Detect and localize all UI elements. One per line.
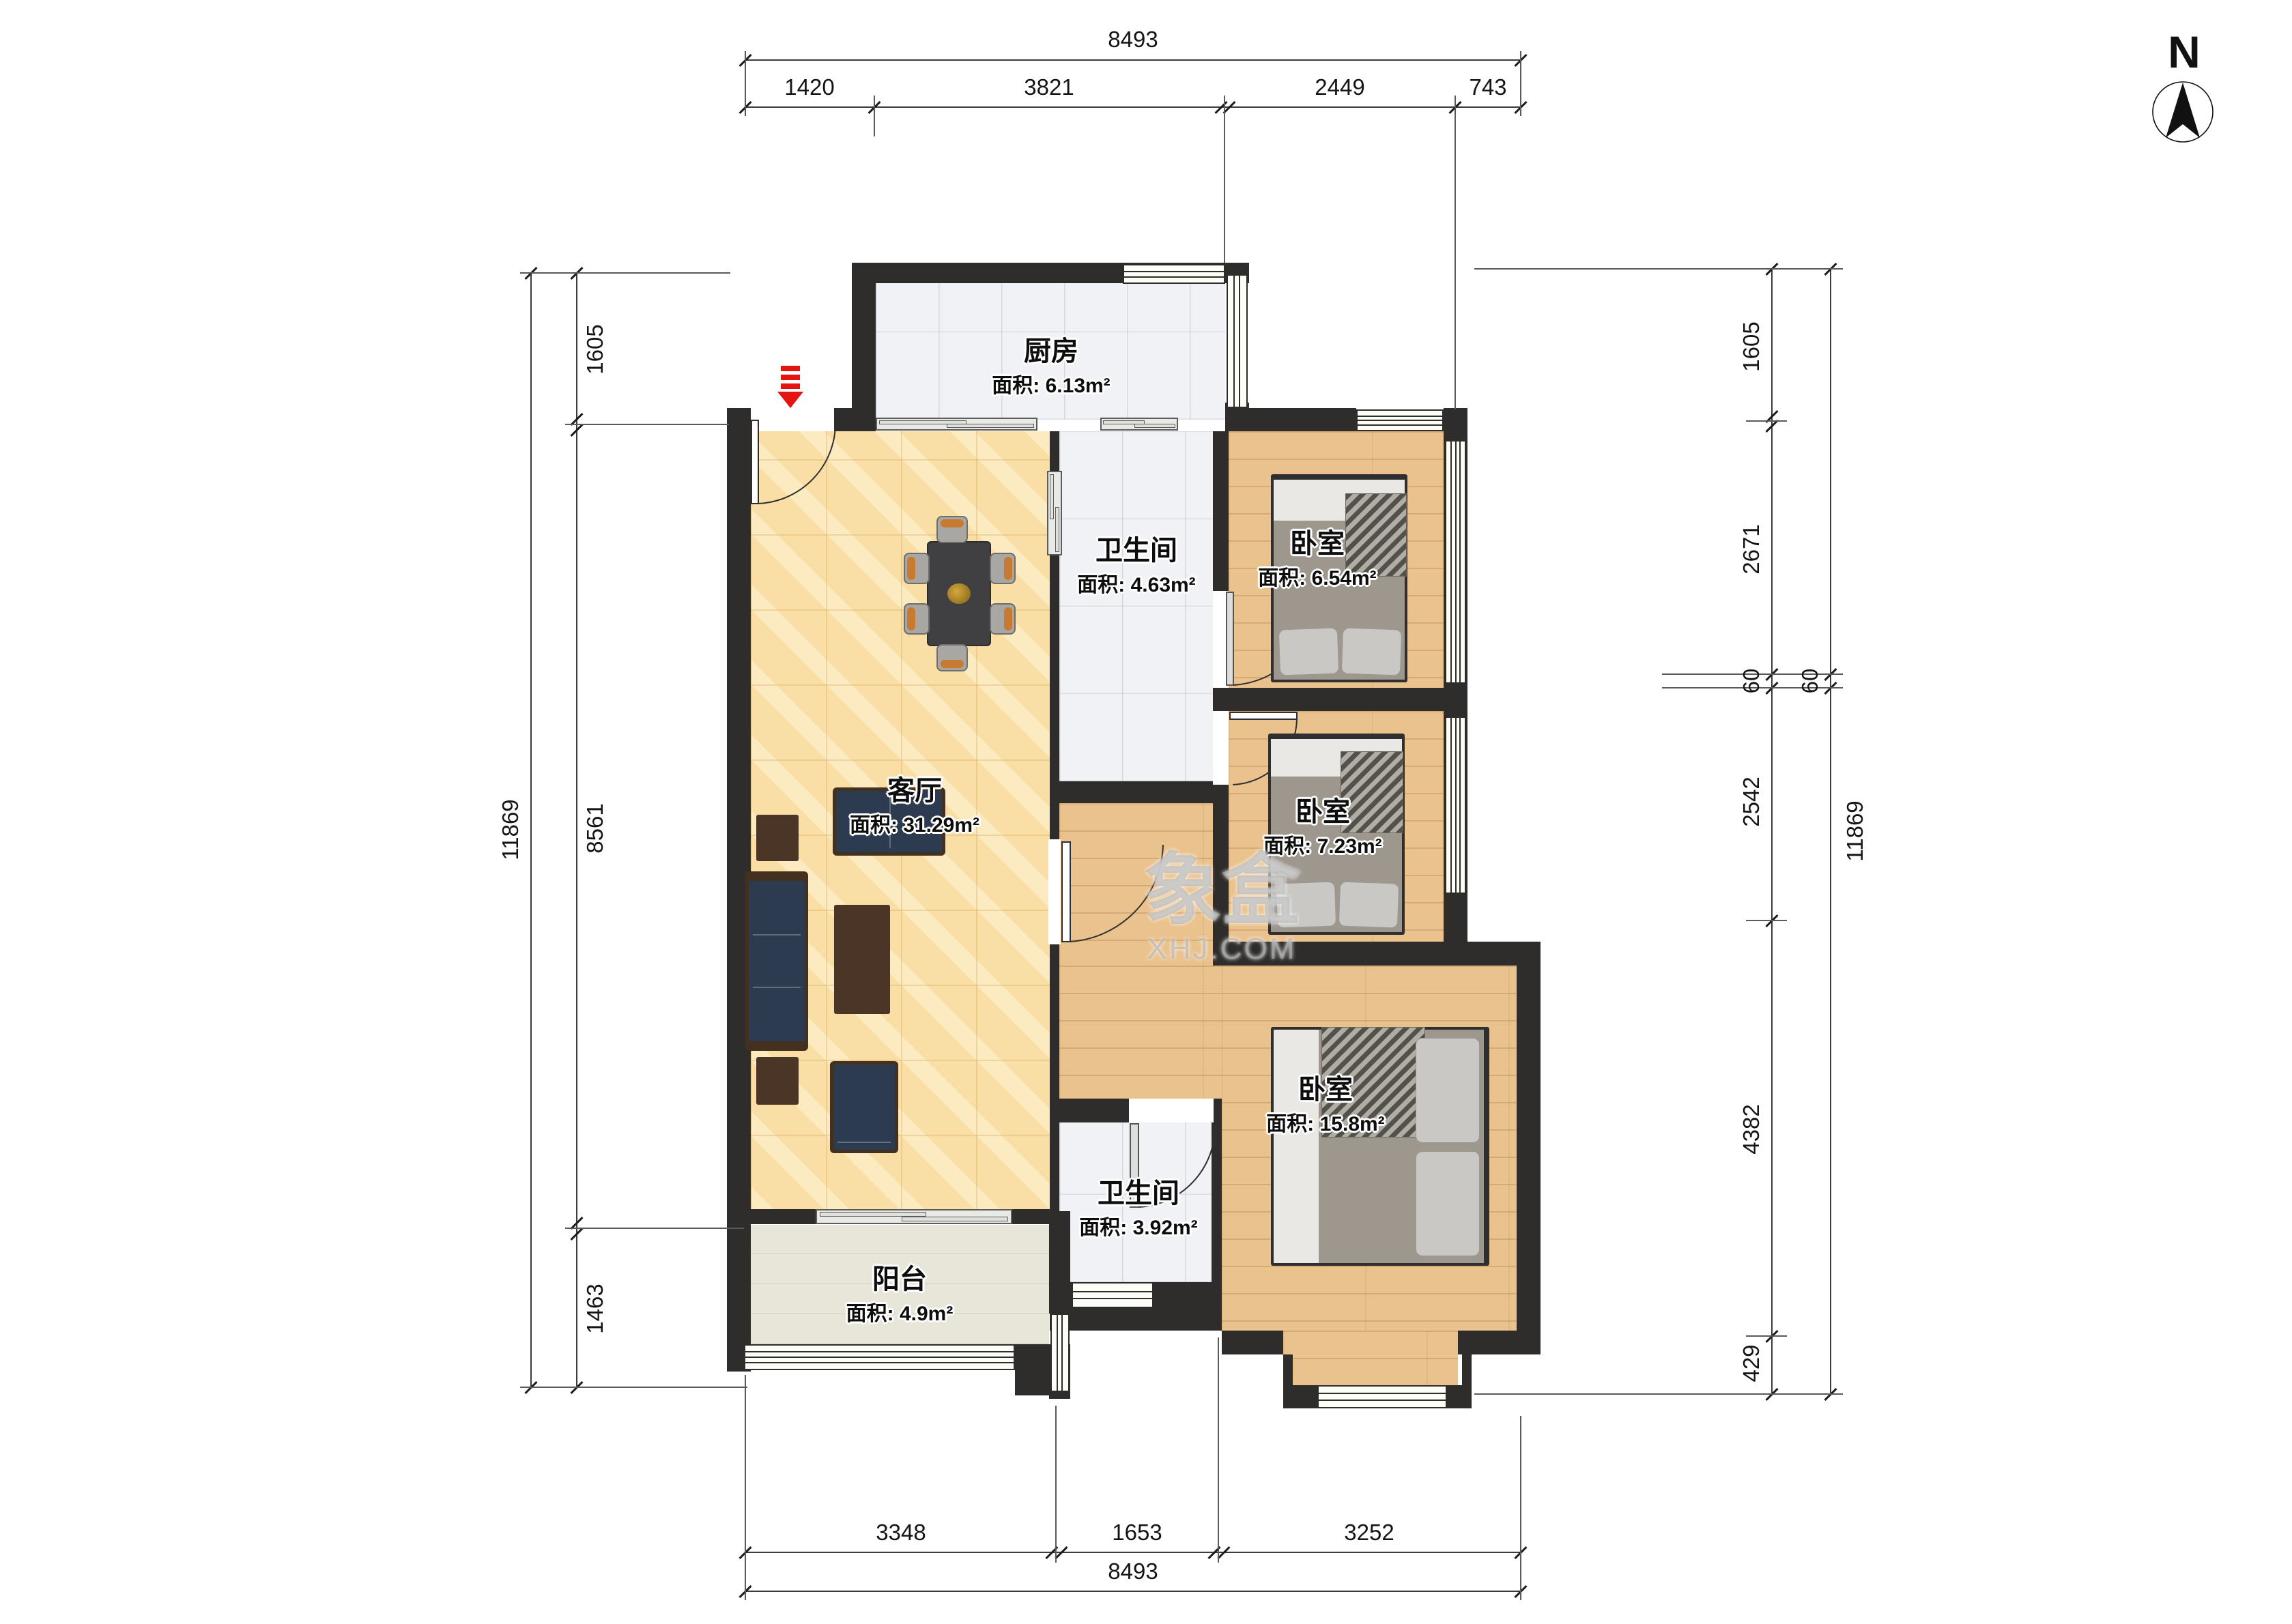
dim-left-outer-line: [530, 273, 532, 1387]
sofa: [745, 871, 808, 1051]
dim-top-seg: 743: [1433, 74, 1543, 101]
room-label-bedroom3: 卧室面积: 15.8m²: [1216, 1067, 1435, 1137]
dim-right-total: 11869: [1842, 777, 1869, 886]
wall-right-bedroom3: [1517, 966, 1541, 1354]
dim-top-inner-line: [745, 106, 1521, 108]
wall-bath-low-window-right: [1154, 1282, 1212, 1308]
room-label-bath-low: 卫生间面积: 3.92m²: [1029, 1171, 1248, 1241]
dim-right-seg: 4382: [1738, 1075, 1765, 1184]
dining-chair: [904, 553, 930, 584]
kitchen-top-window: [1123, 264, 1225, 284]
dim-bottom-seg: 3252: [1315, 1519, 1424, 1546]
wall-top-b: [834, 408, 876, 431]
bath-top-sliding-door: [1100, 418, 1178, 431]
wall-balcony-top-left: [751, 1209, 816, 1224]
wall-top-d: [1444, 408, 1467, 431]
wall-kitchen-left: [852, 263, 876, 431]
entry-door: [749, 418, 840, 508]
dining-chair: [904, 603, 930, 635]
bedroom2-right-window: [1445, 716, 1466, 894]
floorplan-page: 厨房面积: 6.13m² 卫生间面积: 4.63m² 卧室面积: 6.54m² …: [0, 0, 2292, 1624]
side-table: [756, 815, 799, 861]
dining-chair: [936, 644, 968, 671]
dim-right-outer-line: [1830, 269, 1831, 1394]
bedroom3-bay-window: [1317, 1385, 1447, 1408]
balcony-right-window: [1050, 1314, 1070, 1392]
dim-top-seg: 2449: [1285, 74, 1394, 101]
dim-top-total: 8493: [1078, 26, 1188, 53]
dim-right-seg: 1605: [1738, 292, 1765, 401]
balcony-sliding-door: [816, 1209, 1012, 1224]
room-label-bedroom1: 卧室面积: 6.54m²: [1208, 521, 1427, 591]
dim-right-seg: 60: [1738, 626, 1765, 736]
dim-right-seg: 429: [1738, 1309, 1765, 1418]
armchair: [830, 1061, 898, 1153]
dim-bottom-inner-line: [745, 1552, 1521, 1553]
bedroom3-bay-floor: [1283, 1331, 1458, 1385]
dim-left-seg: 1463: [582, 1254, 609, 1363]
wall-bedroom3-bottom-right: [1458, 1331, 1541, 1354]
wall-bath-top-bottom: [1050, 781, 1229, 803]
dim-right-seg: 2542: [1738, 747, 1765, 856]
dim-bottom-seg: 3348: [846, 1519, 956, 1546]
dim-right-seg: 2671: [1738, 495, 1765, 604]
room-label-kitchen: 厨房面积: 6.13m²: [942, 329, 1160, 398]
wall-bedroom1-bedroom2: [1213, 688, 1467, 711]
dim-top-seg: 1420: [755, 74, 864, 101]
wall-bath-low-top: [1050, 1099, 1129, 1122]
room-label-living: 客厅面积: 31.29m²: [805, 768, 1024, 838]
dining-chair: [936, 516, 968, 543]
watermark-url: XHJ.COM: [1119, 932, 1324, 966]
bedroom1-right-window: [1445, 440, 1466, 684]
kitchen-sliding-door: [876, 418, 1037, 431]
wall-bay-corner-right: [1447, 1385, 1472, 1408]
kitchen-right-window: [1227, 274, 1248, 408]
watermark: 象盒 XHJ.COM: [1119, 850, 1324, 966]
watermark-logo: 象盒: [1119, 850, 1324, 932]
north-label: N: [2160, 26, 2208, 78]
wall-bay-corner-left: [1283, 1385, 1317, 1408]
dim-bottom-outer-line: [745, 1591, 1521, 1592]
bedroom3-floor-left: [1059, 966, 1222, 1102]
bed-bedroom3: [1271, 1027, 1489, 1266]
dim-left-seg: 8561: [582, 774, 609, 883]
room-label-balcony: 阳台面积: 4.9m²: [790, 1257, 1009, 1326]
north-arrow-icon: [2151, 81, 2214, 143]
coffee-table: [834, 905, 890, 1014]
bedroom2-door-opening: [1213, 714, 1229, 785]
dim-left-seg: 1605: [582, 295, 609, 404]
side-table: [756, 1057, 799, 1105]
bedroom1-top-window: [1356, 409, 1444, 431]
wall-top-c: [1249, 408, 1356, 431]
dim-left-total: 11869: [497, 775, 524, 884]
dim-top-seg: 3821: [994, 74, 1104, 101]
dim-bottom-seg: 1653: [1083, 1519, 1192, 1546]
dining-chair: [990, 603, 1016, 635]
balcony-bottom-window: [744, 1344, 1015, 1370]
bath-low-window: [1072, 1282, 1154, 1308]
bath-top-floor: [1059, 431, 1213, 781]
dim-top-outer-line: [745, 59, 1521, 61]
wall-bath-low-bottom: [1050, 1308, 1222, 1331]
dining-table: [928, 542, 990, 645]
dim-right-outer-60: 60: [1796, 626, 1824, 736]
dim-bottom-total: 8493: [1078, 1558, 1188, 1585]
bath-low-door-opening: [1129, 1099, 1214, 1122]
wall-bedroom3-bottom-left: [1222, 1331, 1283, 1354]
dim-right-inner-line: [1771, 269, 1773, 1394]
dining-chair: [990, 553, 1016, 584]
